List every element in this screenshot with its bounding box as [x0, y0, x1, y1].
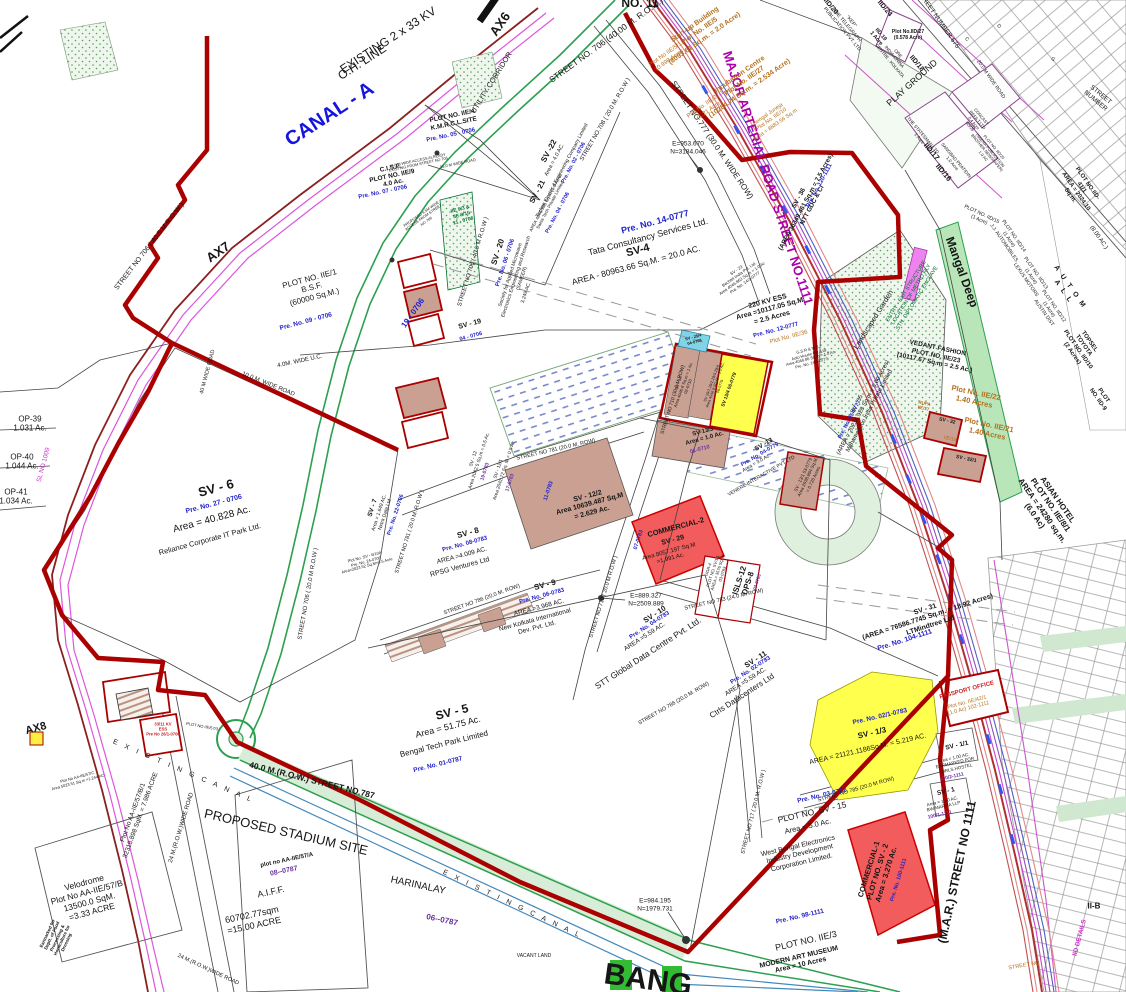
coord-mid-label: E=889.327 N=2509.889: [628, 592, 664, 607]
iie22-label: Plot No. IIE/22 1.40 Acres: [949, 384, 1002, 412]
iid41-label: PLOT NO.IID-41/1 AREA = 2024.10 Sq.m.: [1053, 162, 1104, 218]
street-706-top-label: STREET NO. 706 (40.00 M. R.O.W.): [547, 0, 665, 85]
sv1-1-label: SV - 1/1: [945, 740, 970, 753]
aiff-label: A.I.F.F.: [256, 884, 285, 900]
sv12-2-label: SV - 12/2 Area 10639.487 Sq.M = 2.629 Ac…: [553, 484, 626, 526]
sv12-1-pre-label: 17-0783: [505, 473, 516, 492]
velodrome-label: Velodrome Plot No AA-IIE/57/B 13500.0 Sq…: [47, 868, 129, 926]
wide-uc-label: 4.0M. WIDE U.C.: [277, 354, 323, 370]
harinalay-pre-label: 06--0787: [425, 912, 458, 928]
bsf-pre-label: Pre. No. 09 - 0706: [279, 311, 333, 332]
allotment-plan-map: NO. 11EXISTING 2 x 33 KVO.H. LINEAX6CANA…: [0, 0, 1126, 992]
existing-canal-b-label: E X I S T I N G C A N A L: [441, 869, 583, 941]
sv19-pre-label: 04 - 0706: [459, 331, 483, 343]
map-labels-layer: NO. 11EXISTING 2 x 33 KVO.H. LINEAX6CANA…: [0, 0, 1126, 992]
sv12-1-label: SV - 12/1 Area 2042.72 Sq. M = 0.5 Ac: [487, 439, 517, 501]
ess-33-11-label: 33/11 KV ESS Pre No 26/1-0706: [146, 723, 180, 738]
rupa-label: RUPA IIE/17: [917, 400, 931, 413]
sv25-4-label: SV - 25/4 04-0708: [685, 333, 704, 346]
street-717-label: STREET NO 717 ( 20.0 M. R.O.W ): [740, 769, 767, 855]
iie21-label: Plot No. IIE/21 1.40 Acres: [962, 416, 1015, 444]
museum-pre-label: Pre. No. 98-1111: [775, 908, 825, 927]
street-708-label: STREET NO.708 ( 20.0 M. R.O.W ): [579, 77, 632, 162]
sv31-label: SV - 31 (AREA = 76586.7745 Sq.m. = 18.92…: [859, 585, 997, 651]
road-24-a-label: 24 M.(R.O.W.)WIDE ROAD: [168, 792, 196, 864]
street-706-a-label: STREET NO 706 ( 40.5 M R.O.W ): [113, 202, 186, 293]
street-781-a-label: STREET NO 781 (20.0 M. ROW): [516, 438, 596, 462]
vedant-fashion-label: VEDANT FASHION PLOT NO. IIE/23 (10117.67…: [896, 337, 976, 375]
coord-top-label: E=953.670 N=3184.046: [670, 140, 706, 155]
sv13-1-label: SV - 13/1 03-0779 Area 2938.894 Sq.M. = …: [792, 454, 824, 499]
museum-detail-label: MODERN ART MUSEUM Area = 10 Acres: [759, 945, 841, 979]
ax7-label: AX7: [203, 238, 233, 265]
iib-label: II-B: [1088, 901, 1101, 910]
ugr4-label: UGR-4 PLOT NO. SV/1.1 AREA = 3576 SQ.M 0…: [701, 551, 731, 592]
sv32-1-label: SV - 32/1: [955, 455, 977, 465]
iid24-label: IID/24: [875, 0, 893, 19]
topsel-toyota-label: TOPSEL TOYOTA PLOT NO. IID/10 (2 Acres): [1055, 321, 1105, 375]
grid-cell-c-label: C: [963, 37, 970, 44]
sv23-label: SV - 23 Bechtel India Pvt. Ltd. Area 404…: [713, 253, 769, 301]
iie-9-3-label: IIE 9/3 & IIE 9/1b 11 - 0706: [450, 205, 475, 227]
sv35-label: SV - 35 (AREA = 20234.928 Sq.m = 5.00 Ac…: [830, 356, 899, 460]
iie19-label: IIE/19: [943, 436, 957, 444]
street-710-b-label: STREET NO 710 ( 20.0 M R.O.W ): [588, 555, 619, 638]
existing-canal-a-label: E X I S T I N G C A N A L: [111, 738, 255, 805]
ax6-label: AX6: [486, 9, 513, 39]
sv12-2-pre-label: 11-0783: [543, 481, 555, 502]
grid-cell-d-label: D: [995, 24, 1002, 31]
sv1-3-label: SV - 1/3: [857, 725, 887, 741]
bang-label: BANG: [602, 956, 694, 992]
street-number-675-label: STREET NUMBER 675: [915, 0, 960, 50]
commercial2-area-label: Area 8057.197 Sq.M =1.991 Ac.: [642, 542, 699, 570]
iid27-label: Plot No.IID/27 (0.578 Acre): [892, 30, 924, 42]
street-number-ne-label: STREET NUMBER: [1082, 83, 1113, 113]
access-existing-label: 10.0 M WIDE ACCESS ALREADY EXISTING FROM…: [388, 152, 449, 173]
ax8-label: AX8: [24, 720, 48, 738]
aa-iie-57-c-label: Plot No AA-IIE/57/C Area 5023.51 Sq.m =1…: [50, 768, 106, 791]
iid25-label: PLOT NO. IID/25 (SNEHA PUBLICATION BROTH…: [966, 128, 1011, 176]
canal-a-label: CANAL - A: [281, 78, 379, 153]
grid-cell-g-label: G: [1048, 57, 1055, 64]
access-proposed-label: PROPOSED 8.5M WIDE ACCESS FROM STREET NO…: [402, 200, 446, 236]
iid-details-label: IID DETAILS: [1071, 919, 1088, 957]
pre-19-0706-label: 19 - 0706: [399, 296, 426, 329]
mangal-deep-label: Mangal Deep: [943, 235, 982, 309]
sv5-pre-label: Pre. No. 01-0787: [413, 755, 464, 775]
street-787-label: 40.0 M.(R.O.W.) STREET NO.787: [248, 760, 376, 801]
proposed-stadium-label: PROPOSED STADIUM SITE: [203, 806, 370, 859]
iid9-label: PLOT NO. IID-9: [1087, 383, 1114, 412]
street-706-b-label: STREET NO 706 ( 40.5 M R.O.W ): [457, 217, 491, 308]
telegraph-label: "KEP" THE TELEGRAPH PUBLICATION PVT. LTD: [821, 0, 870, 53]
sv19-label: SV - 19: [458, 318, 483, 332]
harinalay-label: HARINALAY: [389, 874, 446, 897]
wide-road-40-label: 40 M WIDE ROAD: [199, 349, 217, 395]
asian-hotel-label: ASIAN HOTEL PLOT NO. IIE/8/1 AREA = 2428…: [1008, 464, 1085, 551]
sv6-10a-label: Plot No. SV - 6/10A Pre. No. 24-0706 Are…: [339, 548, 394, 575]
street-786-b-label: STREET NO 786 (20.0 M. ROW): [637, 681, 710, 727]
wide-road-20-label: 20.0 M WIDE ROAD: [975, 60, 1006, 101]
commercial2-pre-label: 07-0783: [633, 529, 645, 550]
op39-label: OP-39 1.031 Ac.: [13, 415, 46, 434]
eight-ac-label: (8.00 AC.): [1087, 225, 1108, 251]
street-706-c-label: STREET NO 706 ( 20.0 M R.O.W ): [297, 548, 320, 641]
aiff-area-label: 60702.77sqm =15.00 ACRE: [224, 904, 282, 936]
sv15-company-label: West Bengal Electronics Industry Develop…: [760, 834, 839, 875]
utility-corridor-label: UTILITY CORRIDOR: [470, 51, 515, 116]
mar-label-2-label: (M.A.R.) STREET NO 1111: [935, 799, 979, 944]
aa-iie-57-b1-label: Plot No AA-IIE/57/B/1 32318.898 SqM. = 7…: [114, 769, 159, 860]
sv1-3-pre-label: Pre. No. 02/1-0783: [852, 707, 908, 727]
street-no-br-label: STREET NO: [1008, 960, 1040, 972]
earmarked-label: Earmarked for Deptt. of Food Processing …: [38, 918, 76, 959]
iie-57-3-label: PLOT NO IIE/57/3: [186, 722, 219, 732]
sv12-label: SV - 12 Area 2042.5 Sq.m = 0.5 Ac.: [463, 430, 492, 489]
jj-automobiles-label: PLOT NO. IID/14 (1 Acre) J.J. AUTOMOBILE…: [988, 217, 1028, 264]
sv12-pre-label: 19-0783: [480, 462, 491, 481]
bengal-juneja-label: Bengal Juneja Plot No. IIE/10 Area = 888…: [745, 97, 799, 143]
road-24-b-label: 24 M.(R.O.W.)WIDE ROAD: [176, 953, 239, 987]
vacant-land-label: VACANT LAND: [517, 954, 552, 960]
bsf-label: PLOT NO. IIE/1 B.S.F. (60000 Sq.M.): [281, 267, 342, 309]
op41-label: OP-41 1.034 Ac.: [0, 488, 33, 507]
sv1-1-pre-label: 100/2-1111: [939, 772, 964, 783]
street-786-a-label: STREET NO 786 (20.0 M. ROW): [443, 583, 521, 617]
op40-label: OP-40 1.044 Ac.: [5, 453, 38, 472]
street-783-label: STREET NO 783 (24.0 M. ROW): [684, 588, 764, 612]
coord-bot-label: E=984.195 N=1979.731: [637, 897, 673, 912]
sv1-1-detail-label: Area = 1.00 AC. EARMARKED FOR GIRLS HOST…: [934, 751, 976, 775]
sv32-label: SV - 32: [938, 417, 956, 426]
wide-road-10-label: 10.0 M. WIDE ROAD: [241, 371, 296, 399]
gsr-ms-label: G.S.R & M.S. Auto House Pvt. Ltd. Area 4…: [783, 341, 836, 372]
